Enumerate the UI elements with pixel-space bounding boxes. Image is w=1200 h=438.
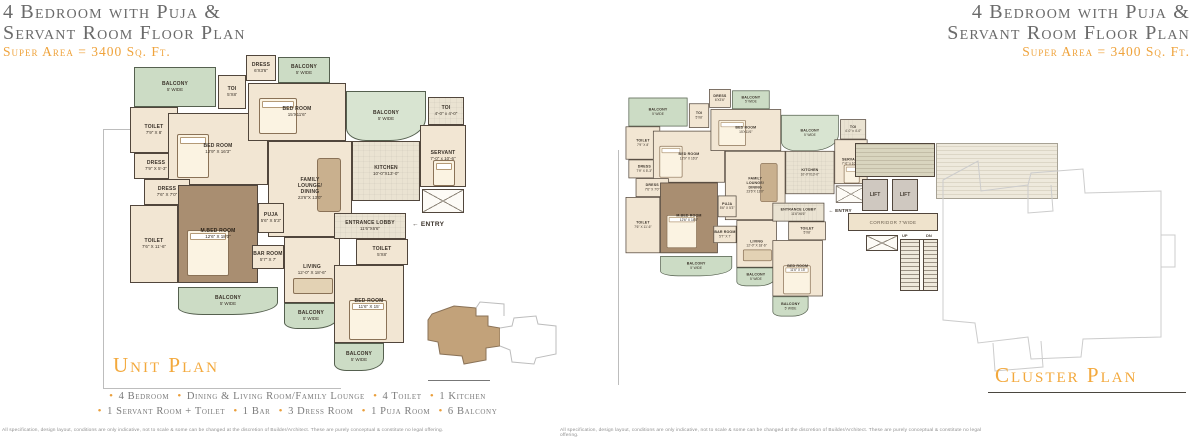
- legend-item: 1 Bar: [243, 406, 271, 417]
- title-line1: 4 Bedroom with Puja &: [947, 2, 1190, 23]
- room-dim: 11'6" X 15': [359, 304, 380, 310]
- stairs-up-label: UP: [902, 233, 908, 238]
- room-dim: 5' WIDE: [167, 87, 183, 93]
- legend: •4 Bedroom •Dining & Living Room/Family …: [60, 389, 530, 419]
- key-plan-underline: [428, 380, 490, 381]
- room-dim: 12'-0" X 18'-6": [298, 270, 326, 276]
- room-dim: 12'6" X 18'0": [205, 234, 230, 240]
- entry-arrow-icon: ←: [829, 209, 834, 214]
- sofa-icon: [743, 250, 772, 262]
- room-balcony-bottom-right: BALCONY 5' WIDE: [284, 303, 338, 329]
- room-dim: 12'6" X 18'0": [680, 218, 698, 222]
- room-toi-servant: TOI 4'-0" x 4'-0": [840, 119, 866, 139]
- lift-2: LIFT: [892, 179, 918, 211]
- room-dim: 7'9" X 8': [146, 130, 162, 136]
- room-dim: 23'6"X 13'0": [298, 195, 322, 201]
- key-plan-unit-shape: [428, 306, 500, 364]
- room-toilet-entry: TOILET 5'X8': [356, 239, 408, 265]
- room-dim: 10'-0"X13'-0": [801, 173, 820, 177]
- room-puja: PUJA 5'6" X 5'3": [258, 203, 284, 233]
- room-dim: 4'-0" x 4'-0": [845, 130, 861, 134]
- disclaimer-left: All specification, design layout, condit…: [2, 428, 502, 433]
- title-line2: Servant Room Floor Plan: [947, 23, 1190, 44]
- room-dim: 7'6" X 7'0": [645, 188, 660, 192]
- room-label: FAMILY LOUNGE/ DINING: [288, 177, 332, 195]
- legend-item: 1 Puja Room: [371, 406, 430, 417]
- room-dim: 11'6"X6'6": [791, 212, 805, 216]
- room-balcony-bottom: BALCONY 5' WIDE: [772, 296, 808, 316]
- room-toilet-left: TOILET 7'6" X 11'-6": [626, 197, 661, 253]
- room-balcony-bottom-right: BALCONY 5' WIDE: [736, 268, 775, 287]
- room-puja: PUJA 5'6" X 5'3": [718, 196, 737, 218]
- entry-arrow-icon: ←: [412, 221, 419, 228]
- room-balcony-mid: BALCONY 5' WIDE: [781, 115, 839, 151]
- room-balcony-top: BALCONY 5' WIDE: [278, 57, 330, 83]
- adjacent-units-outline: [933, 85, 1188, 385]
- room-dim: 7'-0" x 10'-6": [430, 156, 455, 162]
- room-entrance-lobby: ENTRANCE LOBBY 11'6"X6'6": [334, 213, 406, 239]
- bullet-icon: •: [104, 390, 118, 402]
- room-dim: 5' WIDE: [220, 301, 236, 307]
- room-bedroom-top: BED ROOM 15'X11'6": [248, 83, 346, 141]
- bullet-icon: •: [172, 390, 186, 402]
- bullet-icon: •: [93, 405, 107, 417]
- bullet-icon: •: [357, 405, 371, 417]
- room-dim: 7'6" X 11'-6": [634, 225, 651, 229]
- room-dim: 7'6" X 11'-6": [142, 244, 166, 250]
- room-balcony-bottom-left: BALCONY 5' WIDE: [178, 287, 278, 315]
- room-dim: 5' WIDE: [296, 70, 312, 76]
- room-dim: 5' WIDE: [652, 112, 664, 116]
- room-bedroom-top: BED ROOM 15'X11'6": [711, 109, 782, 151]
- bullet-icon: •: [433, 405, 447, 417]
- room-dim: 5' WIDE: [750, 277, 762, 281]
- legend-item: 4 Bedroom: [119, 391, 170, 402]
- stairs-divider: [919, 240, 924, 290]
- room-dim: 5'7" X 7': [719, 235, 731, 239]
- room-dim: 5'X8': [377, 252, 387, 258]
- room-dim: 12'-0" X 18'-6": [746, 244, 766, 248]
- room-dim: 15'X11'6": [739, 130, 752, 134]
- room-dim: 5' WIDE: [378, 116, 394, 122]
- title-line2: Servant Room Floor Plan: [3, 23, 246, 44]
- cluster-plan-title: Cluster Plan: [995, 363, 1137, 388]
- room-bar: BAR ROOM 5'7" X 7': [713, 226, 736, 243]
- bullet-icon: •: [228, 405, 242, 417]
- room-balcony-mid: BALCONY 5' WIDE: [346, 91, 426, 141]
- room-dim: 12'9" X 16'3": [205, 149, 230, 155]
- room-toi-top: TOI 5'X8': [218, 75, 246, 109]
- key-plan-cluster-outline: [500, 316, 556, 364]
- bed-icon: [659, 146, 682, 178]
- room-bar: BAR ROOM 5'7" X 7': [252, 245, 284, 269]
- room-dim: 5' WIDE: [745, 100, 757, 104]
- bed-icon: [433, 160, 455, 186]
- cluster-title-underline: [988, 392, 1186, 393]
- corridor: CORRIDOR 7'WIDE: [848, 213, 938, 231]
- room-dim: 4'-0" x 4'-0": [435, 111, 458, 117]
- page-title-right: 4 Bedroom with Puja & Servant Room Floor…: [947, 2, 1190, 44]
- legend-item: 1 Servant Room + Toilet: [107, 406, 225, 417]
- room-kitchen: KITCHEN 10'-0"X13'-0": [352, 141, 420, 201]
- room-label: FAMILY LOUNGE/ DINING: [739, 177, 771, 190]
- bullet-icon: •: [274, 405, 288, 417]
- room-dim: 12'9" X 16'3": [680, 157, 698, 161]
- room-balcony-bottom: BALCONY 5' WIDE: [334, 343, 384, 371]
- room-dim: 11'6"X6'6": [360, 226, 380, 232]
- room-dim: 5'X8': [227, 92, 237, 98]
- room-dim: 6'X3'6": [715, 99, 725, 103]
- cluster-plan-drawing: BALCONY 5' WIDE TOILET 7'9" X 8' DRESS 7…: [618, 55, 1188, 390]
- room-living: LIVING 12'-0" X 18'-6": [284, 237, 340, 303]
- legend-item: 6 Balcony: [448, 406, 497, 417]
- room-dim: 5' WIDE: [303, 316, 319, 322]
- room-dim: 5' WIDE: [785, 307, 797, 311]
- disclaimer-right: All specification, design layout, condit…: [560, 428, 990, 438]
- cluster-unit-copy: BALCONY 5' WIDE TOILET 7'9" X 8' DRESS 7…: [604, 89, 892, 328]
- room-dim: 23'6"X 13'0": [746, 190, 763, 194]
- room-dim: 5' WIDE: [351, 357, 367, 363]
- legend-item: Dining & Living Room/Family Lounge: [187, 391, 365, 402]
- room-entrance-lobby: ENTRANCE LOBBY 11'6"X6'6": [772, 203, 824, 222]
- room-dim: 7'9" X 8': [637, 143, 649, 147]
- page-title-left: 4 Bedroom with Puja & Servant Room Floor…: [3, 2, 246, 44]
- room-dim: 5'X8': [696, 116, 703, 120]
- legend-item: 1 Kitchen: [439, 391, 486, 402]
- legend-line-1: •4 Bedroom •Dining & Living Room/Family …: [60, 389, 530, 404]
- room-servant: SERVANT 7'-0" x 10'-6": [420, 125, 466, 187]
- shaft-x-box: [422, 189, 464, 213]
- legend-item: 4 Toilet: [383, 391, 422, 402]
- room-balcony-top-left: BALCONY 5' WIDE: [628, 98, 687, 127]
- room-dim: 6'X3'6": [254, 68, 268, 74]
- bullet-icon: •: [368, 390, 382, 402]
- room-balcony-bottom-left: BALCONY 5' WIDE: [660, 256, 732, 276]
- room-toi-servant: TOI 4'-0" x 4'-0": [428, 97, 464, 125]
- legend-item: 3 Dress Room: [288, 406, 353, 417]
- room-balcony-top-left: BALCONY 5' WIDE: [134, 67, 216, 107]
- key-plan-locator: [424, 300, 564, 380]
- entry-marker: ← ENTRY: [412, 221, 444, 228]
- room-dim: 15'X11'6": [288, 112, 307, 118]
- room-toi-top: TOI 5'X8': [689, 103, 709, 127]
- room-dim: 7'6" X 7'0": [157, 192, 177, 198]
- core-shaft-x-box: [866, 235, 898, 251]
- room-dim: 5'6" X 5'3": [261, 218, 281, 224]
- room-bedroom-bottom: BED ROOM 11'6" X 15': [772, 240, 822, 296]
- room-dim: 5' WIDE: [804, 133, 816, 137]
- legend-line-2: •1 Servant Room + Toilet •1 Bar •3 Dress…: [60, 404, 530, 419]
- entry-label: ENTRY: [421, 221, 444, 228]
- room-dress-top: DRESS 6'X3'6": [709, 89, 731, 108]
- room-kitchen: KITCHEN 10'-0"X13'-0": [785, 151, 834, 194]
- room-toilet-left: TOILET 7'6" X 11'-6": [130, 205, 178, 283]
- room-toilet-entry: TOILET 5'X8': [788, 221, 825, 240]
- room-dim: 10'-0"X13'-0": [373, 171, 399, 177]
- floorplan-brochure-page: { "header": { "title_line1": "4 Bedroom …: [0, 0, 1200, 438]
- stairs-dn-label: DN: [926, 233, 932, 238]
- room-living: LIVING 12'-0" X 18'-6": [736, 220, 776, 268]
- sofa-icon: [293, 278, 333, 294]
- room-dim: 5'7" X 7': [260, 257, 276, 263]
- room-master-bedroom: M.BED ROOM 12'6" X 18'0": [660, 183, 718, 254]
- bed-icon: [177, 134, 209, 178]
- room-dim: 5'X8': [804, 231, 811, 235]
- bullet-icon: •: [425, 390, 439, 402]
- room-bedroom-bottom: BED ROOM 11'6" X 15': [334, 265, 404, 343]
- room-dim: 11'6" X 15': [790, 268, 805, 272]
- room-balcony-top: BALCONY 5' WIDE: [732, 90, 769, 109]
- room-dim: 5'6" X 5'3": [720, 207, 735, 211]
- lift-1: LIFT: [862, 179, 888, 211]
- room-dim: 7'9" X 5'-3": [145, 166, 167, 172]
- room-dim: 5' WIDE: [690, 266, 702, 270]
- title-line1: 4 Bedroom with Puja &: [3, 2, 246, 23]
- core-terrace-hatch: [855, 143, 935, 177]
- room-dress-top: DRESS 6'X3'6": [246, 55, 276, 81]
- room-dim: 7'9" X 5'-3": [636, 169, 652, 173]
- room-master-bedroom: M.BED ROOM 12'6" X 18'0": [178, 185, 258, 283]
- key-plan-outline-detail: [476, 302, 504, 316]
